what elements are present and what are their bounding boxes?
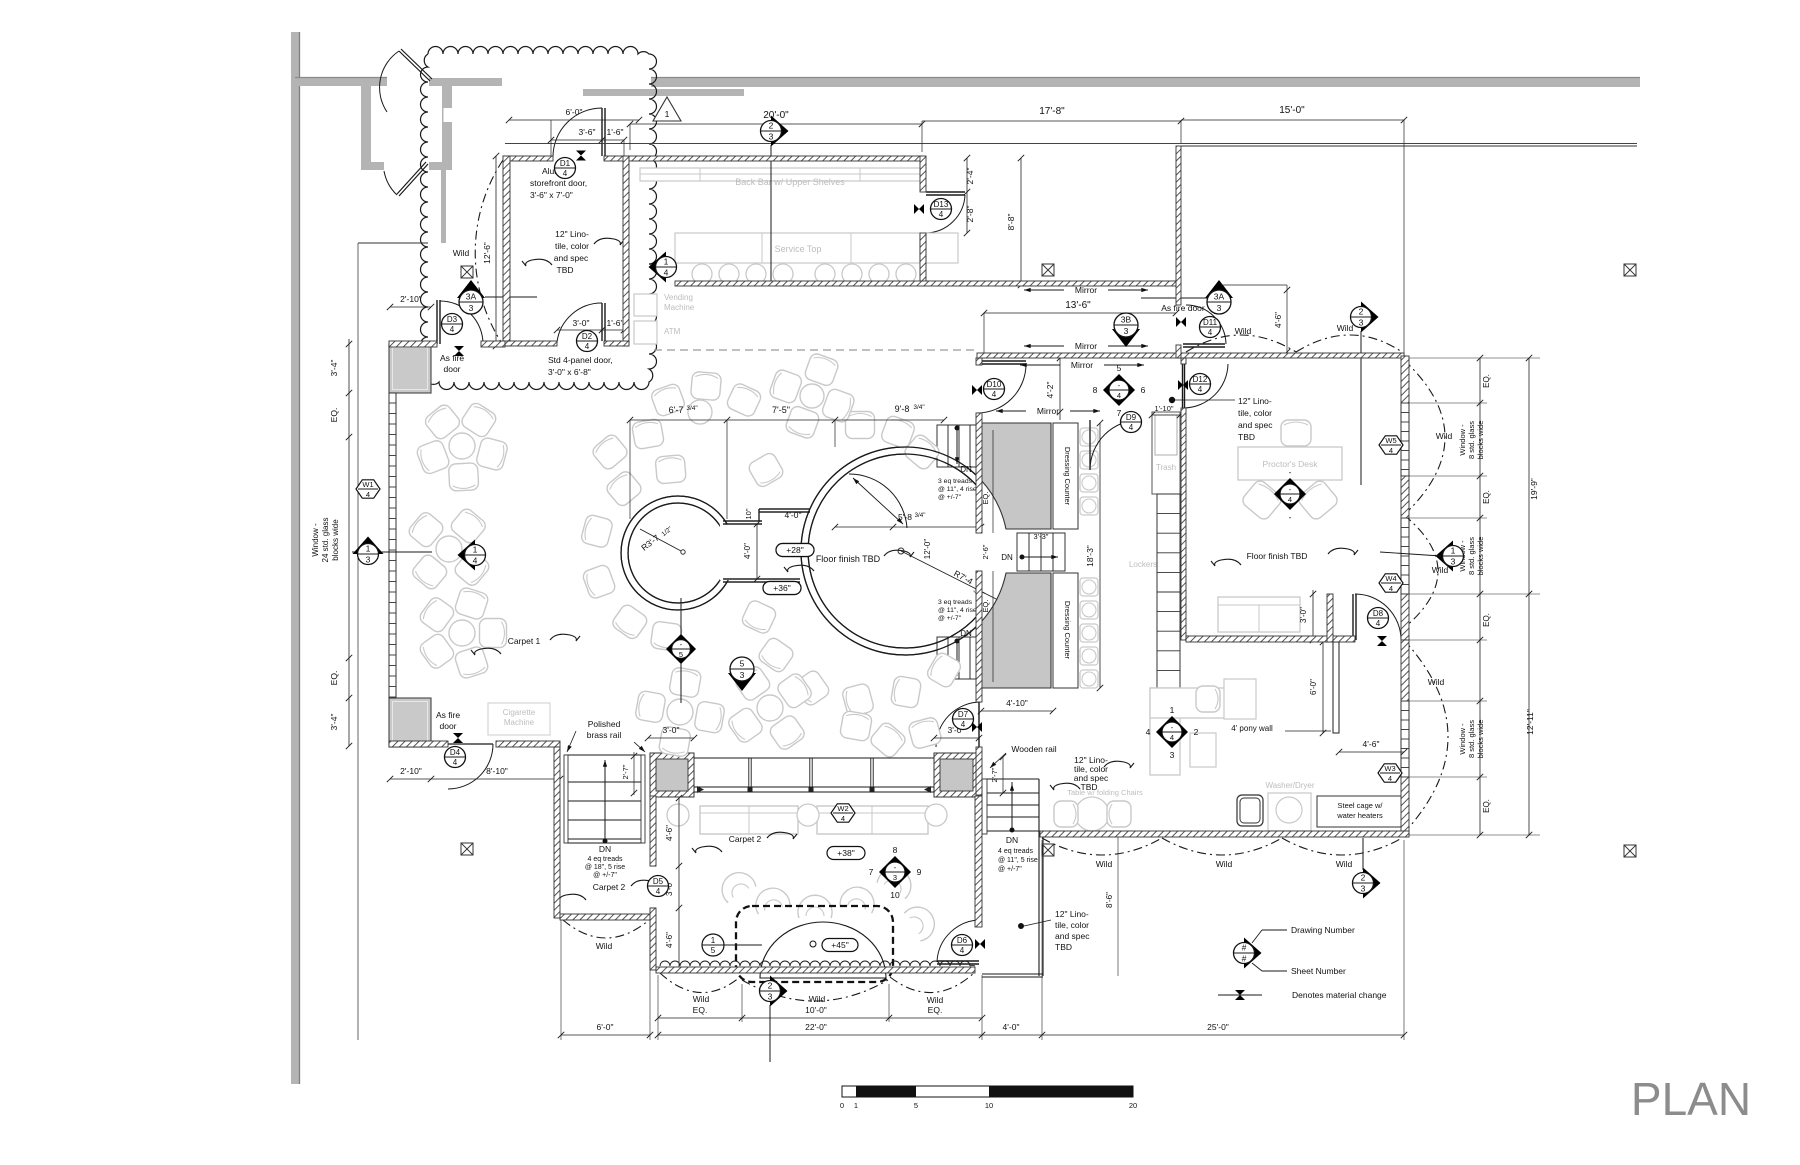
svg-text:D10: D10 [987, 380, 1002, 389]
svg-text:6: 6 [1141, 385, 1146, 395]
svg-text:+36": +36" [773, 583, 790, 593]
svg-text:Vending: Vending [664, 293, 693, 302]
svg-text:PLAN: PLAN [1631, 1073, 1751, 1125]
svg-text:3/4": 3/4" [915, 512, 926, 519]
svg-text:Wild: Wild [693, 994, 710, 1004]
svg-text:Wild: Wild [809, 994, 826, 1004]
svg-text:Wild: Wild [1235, 326, 1252, 336]
svg-text:blocks wide: blocks wide [1476, 720, 1485, 759]
svg-text:1: 1 [366, 544, 371, 554]
svg-text:12" Lino-: 12" Lino- [555, 229, 589, 239]
svg-text:Wild: Wild [1337, 323, 1354, 333]
svg-text:W2: W2 [837, 804, 848, 813]
svg-text:3A: 3A [466, 292, 477, 302]
svg-text:4'-2": 4'-2" [1045, 382, 1055, 399]
svg-text:Wild: Wild [1216, 859, 1233, 869]
svg-text:EQ.: EQ. [928, 1005, 943, 1015]
svg-text:10'-0": 10'-0" [805, 1005, 827, 1015]
svg-text:EQ.: EQ. [329, 408, 339, 423]
svg-text:7: 7 [869, 867, 874, 877]
svg-text:4: 4 [992, 390, 997, 399]
svg-text:4'-0": 4'-0" [743, 543, 752, 559]
svg-text:Wild: Wild [1336, 859, 1353, 869]
svg-text:Wild: Wild [1436, 431, 1453, 441]
svg-text:8 std. glass: 8 std. glass [1467, 720, 1476, 758]
svg-text:3: 3 [1217, 303, 1222, 313]
svg-text:-: - [1289, 512, 1292, 522]
svg-text:3: 3 [1124, 326, 1129, 336]
svg-text:DN: DN [599, 844, 611, 854]
svg-text:3'-6" x 7'-0": 3'-6" x 7'-0" [530, 190, 573, 200]
svg-text:3: 3 [1451, 556, 1456, 566]
svg-text:ATM: ATM [664, 327, 681, 336]
svg-text:2'-10": 2'-10" [400, 766, 422, 776]
svg-text:3 eq treads: 3 eq treads [938, 478, 973, 485]
svg-text:4: 4 [656, 887, 661, 896]
svg-text:1: 1 [1451, 546, 1456, 556]
svg-text:8'-6": 8'-6" [1105, 892, 1114, 908]
svg-text:door: door [439, 721, 456, 731]
svg-text:4: 4 [453, 758, 458, 767]
svg-text:1: 1 [473, 545, 478, 555]
svg-text:Table w/ folding Chairs: Table w/ folding Chairs [1067, 788, 1143, 797]
svg-text:2'-4": 2'-4" [965, 168, 975, 185]
svg-text:Mirror: Mirror [1037, 406, 1059, 416]
svg-text:10: 10 [890, 890, 900, 900]
svg-text:storefront door,: storefront door, [530, 178, 587, 188]
svg-text:3'-0": 3'-0" [1299, 607, 1308, 623]
svg-text:8 std. glass: 8 std. glass [1467, 537, 1476, 575]
svg-text:water heaters: water heaters [1336, 811, 1383, 820]
svg-text:Wild: Wild [1432, 565, 1449, 575]
svg-text:4'-6": 4'-6" [1274, 312, 1283, 328]
svg-text:EQ.: EQ. [1482, 613, 1491, 627]
svg-text:@ +/-7": @ +/-7" [938, 615, 962, 622]
svg-text:Dressing Counter: Dressing Counter [1063, 601, 1072, 660]
svg-text:2'-8": 2'-8" [965, 206, 975, 223]
svg-text:D7: D7 [958, 710, 969, 719]
svg-text:1: 1 [664, 257, 669, 267]
svg-text:DN: DN [1001, 553, 1013, 562]
svg-text:1'-10": 1'-10" [1154, 404, 1173, 413]
svg-text:D5: D5 [653, 877, 664, 886]
svg-text:Wooden rail: Wooden rail [1011, 744, 1056, 754]
svg-text:5: 5 [740, 659, 745, 669]
svg-text:DN: DN [1006, 835, 1018, 845]
svg-text:Polished: Polished [588, 719, 621, 729]
svg-text:4: 4 [585, 342, 590, 351]
svg-text:D6: D6 [957, 936, 968, 945]
svg-text:3: 3 [768, 991, 773, 1001]
svg-text:4' pony wall: 4' pony wall [1231, 724, 1273, 733]
svg-text:Window -: Window - [311, 523, 320, 557]
svg-text:2: 2 [768, 981, 773, 991]
svg-text:Washer/Dryer: Washer/Dryer [1265, 781, 1314, 790]
svg-text:3'-4": 3'-4" [329, 714, 339, 731]
svg-text:blocks wide: blocks wide [1476, 537, 1485, 576]
svg-text:3B: 3B [1121, 315, 1132, 325]
svg-text:W3: W3 [1384, 764, 1395, 773]
svg-text:TBD: TBD [1055, 942, 1072, 952]
svg-text:9: 9 [917, 867, 922, 877]
svg-text:As fire door: As fire door [1161, 303, 1205, 313]
svg-text:4 eq treads: 4 eq treads [587, 856, 623, 863]
svg-text:4: 4 [1389, 446, 1393, 455]
svg-text:3: 3 [366, 554, 371, 564]
svg-text:4: 4 [563, 169, 568, 178]
svg-text:20'-0": 20'-0" [763, 110, 789, 121]
svg-text:Machine: Machine [504, 718, 535, 727]
svg-text:4: 4 [841, 814, 845, 823]
svg-text:15'-0": 15'-0" [1279, 105, 1305, 116]
svg-text:@ 18", 5 rise: @ 18", 5 rise [585, 864, 625, 871]
svg-text:8: 8 [893, 845, 898, 855]
svg-text:5: 5 [1117, 363, 1122, 373]
svg-text:Window -: Window - [1458, 424, 1467, 456]
svg-text:5'-8: 5'-8 [898, 512, 912, 522]
svg-text:tile, color: tile, color [1238, 408, 1272, 418]
svg-text:3: 3 [769, 131, 774, 141]
svg-text:#: # [1242, 943, 1247, 953]
svg-text:3A: 3A [1214, 292, 1225, 302]
svg-text:5: 5 [711, 946, 716, 955]
svg-text:4'-0": 4'-0" [785, 510, 802, 520]
svg-text:2'-7": 2'-7" [621, 764, 630, 779]
svg-text:@ 11", 5 rise: @ 11", 5 rise [998, 857, 1038, 864]
svg-text:Service Top: Service Top [775, 244, 822, 254]
svg-text:3'-4": 3'-4" [329, 360, 339, 377]
svg-text:Wild: Wild [453, 248, 470, 258]
svg-text:25'-0": 25'-0" [1207, 1022, 1229, 1032]
svg-text:Floor finish TBD: Floor finish TBD [1247, 551, 1308, 561]
svg-text:Dressing Counter: Dressing Counter [1063, 447, 1072, 506]
svg-text:D8: D8 [1373, 609, 1384, 618]
svg-text:3'-6": 3'-6" [579, 127, 596, 137]
svg-text:W4: W4 [1385, 574, 1396, 583]
svg-text:3'-0": 3'-0" [573, 318, 590, 328]
svg-text:12'-6": 12'-6" [482, 242, 492, 264]
svg-text:Floor finish TBD: Floor finish TBD [816, 554, 881, 564]
svg-text:1'-6": 1'-6" [607, 127, 624, 137]
svg-text:Carpet 2: Carpet 2 [593, 882, 626, 892]
svg-text:22'-0": 22'-0" [805, 1022, 827, 1032]
svg-text:3/4": 3/4" [913, 404, 925, 411]
svg-text:EQ.: EQ. [1482, 799, 1491, 813]
svg-text:6'-0": 6'-0" [1309, 679, 1318, 695]
svg-text:Cigarette: Cigarette [503, 708, 536, 717]
svg-text:4: 4 [473, 555, 478, 565]
svg-text:tile, color: tile, color [1055, 920, 1089, 930]
svg-text:4: 4 [1376, 619, 1381, 628]
svg-text:7: 7 [1117, 408, 1122, 418]
svg-text:3 eq treads: 3 eq treads [938, 599, 973, 606]
svg-text:5: 5 [679, 650, 683, 659]
svg-text:D11: D11 [1203, 318, 1218, 327]
svg-text:Mirror: Mirror [1075, 285, 1097, 295]
svg-text:19'-9": 19'-9" [1529, 478, 1539, 500]
svg-text:6'-0": 6'-0" [566, 107, 583, 117]
svg-text:@ 11", 4 rise: @ 11", 4 rise [938, 486, 977, 493]
svg-text:8 std. glass: 8 std. glass [1467, 421, 1476, 459]
svg-text:Denotes material change: Denotes material change [1292, 990, 1387, 1000]
svg-text:3'-0": 3'-0" [663, 725, 680, 735]
svg-text:4: 4 [1288, 495, 1292, 504]
svg-text:4: 4 [961, 720, 966, 729]
svg-text:3/4": 3/4" [686, 405, 698, 412]
svg-text:1: 1 [854, 1101, 858, 1110]
svg-text:brass rail: brass rail [587, 730, 622, 740]
svg-text:TBD: TBD [1238, 432, 1255, 442]
svg-text:1: 1 [711, 936, 716, 945]
svg-text:4: 4 [1170, 733, 1174, 742]
svg-text:4'-10": 4'-10" [1006, 698, 1028, 708]
svg-text:4: 4 [1208, 328, 1213, 337]
svg-text:W1: W1 [362, 480, 373, 489]
svg-text:EQ.: EQ. [1482, 374, 1491, 388]
svg-text:1: 1 [1170, 705, 1175, 715]
svg-text:12" Lino-: 12" Lino- [1055, 909, 1089, 919]
svg-text:D13: D13 [934, 200, 949, 209]
svg-text:blocks wide: blocks wide [331, 519, 340, 561]
svg-text:6'-0": 6'-0" [597, 1022, 614, 1032]
svg-text:17'-8": 17'-8" [1039, 106, 1065, 117]
svg-text:Back Bar w/ Upper Shelves: Back Bar w/ Upper Shelves [735, 177, 845, 187]
svg-text:-: - [1289, 467, 1292, 477]
svg-text:24 std. glass: 24 std. glass [321, 518, 330, 563]
svg-text:4'-6": 4'-6" [665, 932, 674, 948]
svg-text:4'-6": 4'-6" [665, 825, 674, 841]
svg-text:20: 20 [1129, 1101, 1137, 1110]
svg-text:9'-8: 9'-8 [895, 404, 910, 414]
svg-text:Wild: Wild [1096, 859, 1113, 869]
svg-text:#: # [1242, 953, 1247, 963]
svg-text:6'-7: 6'-7 [669, 405, 684, 415]
svg-text:Steel cage w/: Steel cage w/ [1337, 801, 1383, 810]
svg-text:As fire: As fire [436, 710, 460, 720]
svg-text:3'-3": 3'-3" [1034, 532, 1049, 541]
svg-text:3'-0" x 6'-8": 3'-0" x 6'-8" [548, 367, 591, 377]
svg-text:Wild: Wild [1428, 677, 1445, 687]
svg-text:tile, color: tile, color [555, 241, 589, 251]
svg-text:10: 10 [985, 1101, 993, 1110]
svg-text:D9: D9 [1126, 413, 1137, 422]
svg-text:Mirror: Mirror [1071, 360, 1093, 370]
svg-text:Mirror: Mirror [1075, 341, 1097, 351]
svg-text:2: 2 [1194, 727, 1199, 737]
svg-text:EQ.: EQ. [693, 1005, 708, 1015]
svg-text:Wild: Wild [927, 995, 944, 1005]
svg-text:8'-8": 8'-8" [1006, 214, 1016, 231]
svg-text:10": 10" [744, 508, 753, 519]
svg-text:12'-0": 12'-0" [923, 539, 932, 560]
svg-text:4 eq treads: 4 eq treads [998, 848, 1034, 855]
svg-text:8: 8 [1093, 385, 1098, 395]
svg-text:2: 2 [1361, 873, 1366, 883]
svg-text:+45": +45" [831, 940, 848, 950]
svg-text:4: 4 [1389, 584, 1393, 593]
svg-text:and spec: and spec [1055, 931, 1090, 941]
svg-text:TBD: TBD [557, 265, 574, 275]
svg-text:EQ.: EQ. [1482, 490, 1491, 504]
svg-text:3: 3 [893, 873, 897, 882]
svg-text:@ +/-7": @ +/-7" [593, 872, 617, 879]
svg-text:1: 1 [665, 109, 670, 119]
svg-text:2'-7": 2'-7" [990, 767, 999, 782]
svg-text:2'-10": 2'-10" [400, 294, 422, 304]
svg-text:4: 4 [960, 946, 965, 955]
svg-text:Drawing Number: Drawing Number [1291, 925, 1355, 935]
svg-text:Machine: Machine [664, 303, 695, 312]
svg-text:2'-6": 2'-6" [981, 544, 990, 559]
svg-text:D1: D1 [560, 159, 571, 168]
svg-text:12" Lino-: 12" Lino- [1238, 396, 1272, 406]
svg-text:4: 4 [939, 210, 944, 219]
svg-text:@ 11", 4 rise: @ 11", 4 rise [938, 607, 977, 614]
svg-text:D12: D12 [1193, 375, 1208, 384]
svg-text:+38": +38" [837, 848, 854, 858]
svg-text:0: 0 [840, 1101, 844, 1110]
svg-text:4'-6": 4'-6" [1363, 739, 1380, 749]
svg-text:8'-10": 8'-10" [486, 766, 508, 776]
svg-text:3: 3 [1170, 750, 1175, 760]
svg-text:1'-6": 1'-6" [607, 318, 624, 328]
svg-text:18'-3": 18'-3" [1085, 545, 1095, 567]
svg-text:4'-0": 4'-0" [1003, 1022, 1020, 1032]
svg-text:4: 4 [1117, 391, 1121, 400]
svg-text:3: 3 [1359, 317, 1364, 327]
svg-text:Carpet 2: Carpet 2 [729, 834, 762, 844]
svg-text:W5: W5 [1385, 436, 1396, 445]
svg-text:3: 3 [469, 303, 474, 313]
svg-text:Lockers: Lockers [1129, 560, 1157, 569]
svg-text:and spec: and spec [1238, 420, 1273, 430]
svg-text:Wild: Wild [596, 941, 613, 951]
svg-text:2: 2 [769, 121, 774, 131]
svg-text:5: 5 [914, 1101, 918, 1110]
svg-text:2: 2 [1359, 307, 1364, 317]
svg-text:door: door [443, 364, 460, 374]
svg-text:3: 3 [740, 670, 745, 680]
svg-text:Sheet Number: Sheet Number [1291, 966, 1346, 976]
svg-text:4: 4 [1388, 774, 1392, 783]
svg-text:and spec: and spec [554, 253, 589, 263]
svg-text:4: 4 [664, 267, 669, 277]
svg-text:4: 4 [1198, 385, 1203, 394]
svg-text:blocks wide: blocks wide [1476, 421, 1485, 460]
svg-text:4: 4 [366, 490, 370, 499]
svg-text:7'-5": 7'-5" [772, 405, 790, 415]
svg-text:D3: D3 [447, 315, 458, 324]
svg-text:Std 4-panel door,: Std 4-panel door, [548, 355, 613, 365]
svg-text:EQ.: EQ. [329, 671, 339, 686]
svg-text:13'-6": 13'-6" [1065, 300, 1091, 311]
svg-text:Window -: Window - [1458, 723, 1467, 755]
svg-text:3: 3 [1361, 883, 1366, 893]
svg-text:+28": +28" [786, 545, 803, 555]
svg-text:4: 4 [450, 325, 455, 334]
svg-text:Trash: Trash [1156, 463, 1176, 472]
svg-text:4: 4 [1129, 423, 1134, 432]
svg-text:4: 4 [1146, 727, 1151, 737]
svg-text:D2: D2 [582, 332, 593, 341]
svg-text:TBD: TBD [1081, 782, 1098, 792]
svg-text:@ +/-7": @ +/-7" [998, 866, 1022, 873]
svg-text:D4: D4 [450, 748, 461, 757]
svg-text:Carpet 1: Carpet 1 [508, 636, 541, 646]
svg-text:@ +/-7": @ +/-7" [938, 494, 962, 501]
svg-text:12'-11": 12'-11" [1525, 709, 1535, 735]
